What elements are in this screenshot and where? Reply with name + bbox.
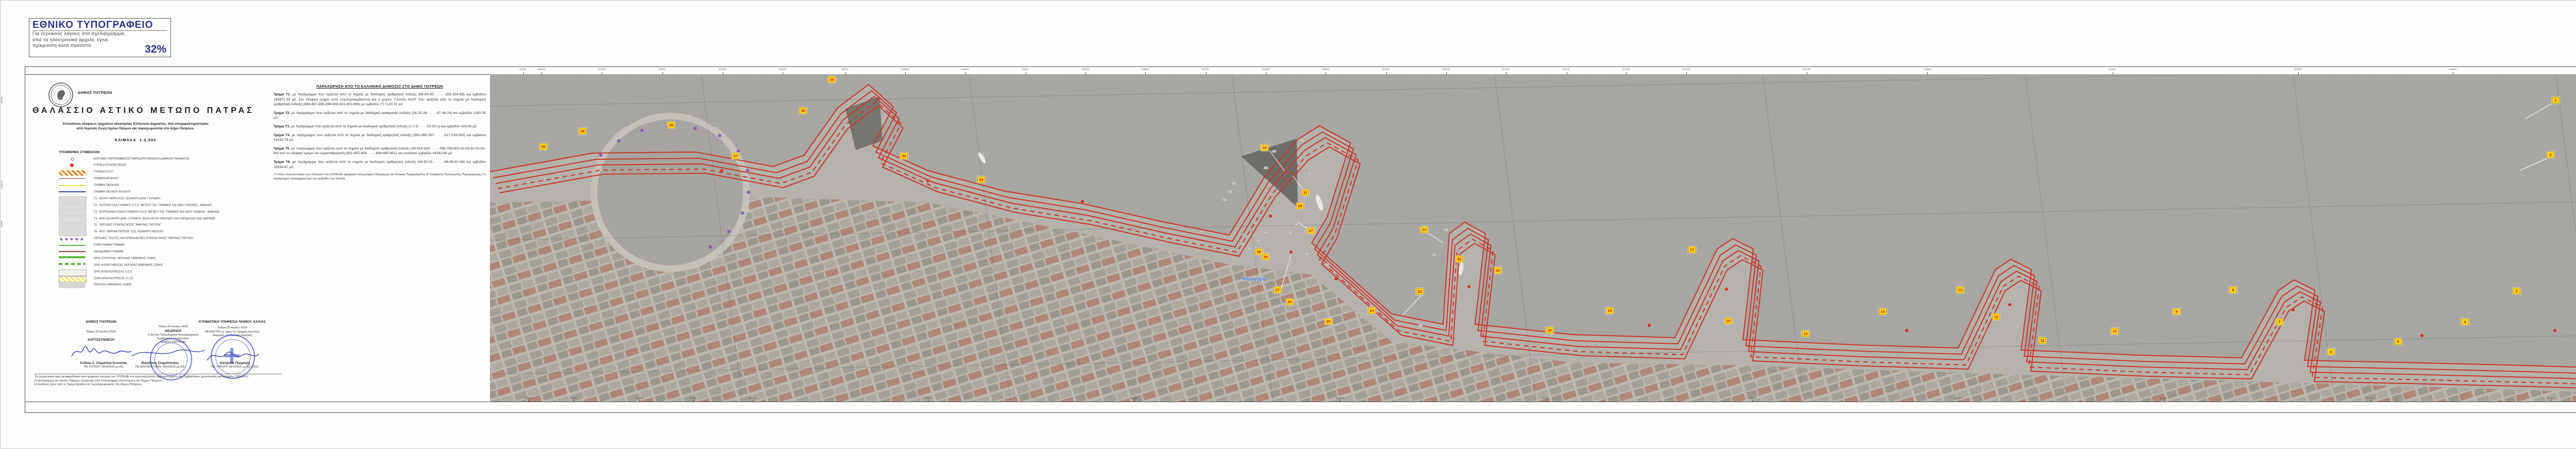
note-line: Η σύνθεση έγινε από το Τμήμα Αρχείου & Γ… (35, 383, 282, 387)
vertex-number-label: 406 (1264, 230, 1268, 233)
legend-item: Τ4 - ΑΠΟ ΛΕΩΦΟΡΟ ΔΗΜ. ΓΟΥΝΑΡΗ, ΜΩΛΟ ΑΓΙΟ… (59, 216, 275, 223)
grayfill-swatch-icon (59, 283, 86, 288)
vertex-number-label: 440 (1444, 228, 1449, 231)
numbered-marker-badge: 35 (828, 76, 836, 83)
grid-label-bottom: 4237000 (2547, 397, 2555, 400)
legend-item-label: Τ3 - ΒΟΡΕΙΟΑΝΑΤΟΛΙΚΑ ΣΤΑΘΜΟΥ Ο.Σ.Ε. ΜΕΤΑ… (94, 210, 310, 213)
graybox-swatch-icon (59, 230, 87, 236)
purpledots-swatch-icon (59, 237, 86, 242)
legend-item-label: ΠΕΡΙΟΧΗ ΛΙΜΕΝΙΚΗΣ ΖΩΝΗΣ (94, 283, 310, 286)
grid-label-top: 4235000 (778, 68, 787, 71)
grid-label-top: 301900 (2109, 68, 2115, 71)
grid-label-top: 4238500 (2449, 68, 2457, 71)
grid-label-top: 300500 (658, 68, 665, 71)
numbered-marker-badge: 5 (2394, 338, 2402, 345)
scale-note: ΚΛΙΜΑΚΑ 1:2,500 (32, 138, 239, 142)
greendash-swatch-icon (59, 263, 86, 265)
numbered-marker-badge: 9 (2173, 308, 2180, 315)
grid-label-bottom: 4236750 (2366, 397, 2375, 400)
numbered-marker-badge: 2 (2547, 152, 2554, 158)
building-dot (1269, 214, 1272, 218)
grid-label-top: 4236750 (1442, 68, 1450, 71)
plan-sheet: ΕΘΝΙΚΟ ΤΥΠΟΓΡΑΦΕΙΟ Για τεχνικούς λόγους … (0, 0, 2576, 449)
grid-label-top: 301500 (1382, 68, 1389, 71)
legend-item: ΓΗΠΕΔΟ Ν.Ο.Π. (59, 170, 275, 176)
graybox-swatch-icon (59, 217, 87, 223)
numbered-marker-badge: 31 (1301, 189, 1309, 196)
blueline-swatch-icon (59, 191, 86, 192)
legend-item-label: ΧΕΡΣΑΙΕΣ, ΠΛΩΤΕΣ ΚΑΙ ΕΠΙΘΑΛΑΣΣΙΕΣ ΕΓΚΑΤΑ… (94, 237, 310, 240)
concession-paragraph: Τμήμα Τ3, με περίγραμμα που ορίζεται από… (274, 124, 486, 129)
grid-label-top: 4237250 (1622, 68, 1631, 71)
legend-item-label: ΖΩΝΗ ΑΠΑΛΛΟΤΡΙΩΣΗΣ Ο.Σ.Ε. (94, 277, 310, 280)
numbered-marker-badge: 36 (799, 107, 807, 114)
orangehatch-swatch-icon (59, 170, 86, 176)
note-line: Τα περιμετρικά όρια μεταφέρθηκαν από ψηφ… (35, 375, 282, 379)
legend-item: Τ5 - ΧΕΡΣΑΙΕΣ ΕΓΚΑΤΑΣΤΑΣΕΙΣ "ΜΑΡΙΝΑΣ ΠΑΤ… (59, 223, 275, 229)
numbered-marker-badge: 16 (1724, 318, 1732, 324)
dashbox-swatch-icon (59, 270, 87, 276)
grid-label-bottom: 301750 (1542, 397, 1549, 400)
numbered-marker-badge: 29 (1296, 203, 1304, 209)
yellowhatch-swatch-icon (59, 276, 87, 282)
building-dot (1467, 285, 1470, 288)
numbered-marker-badge: 32 (1261, 144, 1268, 151)
vertex-number-label: 354 (1300, 139, 1304, 141)
graybox-swatch-icon (59, 196, 87, 203)
numbered-marker-badge: 15 (1802, 330, 1809, 337)
grid-label-top: 4234000 (537, 68, 546, 71)
numbered-marker-badge: 37 (732, 153, 739, 159)
vertex-number-label: 350 (1272, 150, 1277, 153)
numbered-marker-badge: 34 (900, 153, 908, 159)
orthophoto-map: Ψαραγορά 4039383736353433323130292827272… (490, 74, 2576, 402)
legend-list: ΚΟΡΥΦΕΣ ΠΕΡΙΓΡΑΜΜΑΤΟΣ ΠΑΡΑΧΩΡΟΥΜΕΝΩΝ ΕΔΑ… (59, 156, 275, 289)
vertex-number-label: 320 (1223, 198, 1227, 201)
grid-label-bottom: 4235500 (1336, 397, 1344, 400)
vertex-number-label: 405 (1257, 239, 1261, 241)
numbered-marker-badge: 3 (2513, 288, 2520, 294)
legend-item-label: ΓΡΑΜΜΗ ΠΑΛΑΙΟΥ ΑΙΓΙΑΛΟΥ (94, 190, 310, 193)
legend-item: ΟΡΙΟ ΑΠΑΛΛΟΤΡΙΩΣΗΣ Ο.Σ.Ε. (59, 269, 275, 276)
legend-item-label: Τ2 - ΝΟΤΙΟΔΥΤΙΚΑ ΣΤΑΘΜΟΥ Ο.Σ.Ε. ΜΕΤΑΞΥ Σ… (94, 204, 310, 207)
numbered-marker-badge: 6 (2327, 348, 2335, 355)
numbered-marker-badge: 17 (1688, 246, 1696, 253)
building-dot (1648, 324, 1651, 327)
redline-swatch-icon (59, 178, 86, 179)
concession-footnote: (*) Λόγω αναντιστοιχίας των στοιχείων το… (274, 173, 486, 181)
grid-label-bottom: 4236250 (1954, 397, 1962, 400)
reddot-swatch-icon (59, 163, 86, 168)
grid-label-top: 4236000 (1141, 68, 1149, 71)
grid-label-bottom: 301000 (570, 397, 577, 400)
vertex-number-label: 93 (1289, 231, 1292, 234)
numbered-marker-badge: 8 (2229, 287, 2237, 293)
legend-item: ΟΙΚΟΔΟΜΙΚΗ ΓΡΑΜΜΗ (59, 249, 275, 256)
building-dot (2420, 334, 2424, 337)
legend-item-label: ΓΡΑΜΜΗ ΠΑΡΑΛΙΑΣ (94, 184, 310, 187)
concession-heading: ΠΑΡΑΧΩΡΗΣΗ ΑΠΟ ΤΟ ΕΛΛΗΝΙΚΟ ΔΗΜΟΣΙΟ ΣΤΟ Δ… (274, 84, 486, 89)
numbered-marker-badge: 24 (1368, 307, 1376, 314)
building-dot (720, 169, 723, 172)
numbered-marker-badge: 13 (1956, 287, 1964, 293)
concession-paragraph: Τμήμα Τ4, με περίγραμμα που ορίζεται από… (274, 133, 486, 143)
legend-item: ΓΡΑΜΜΗ ΠΑΛΑΙΟΥ ΑΙΓΙΑΛΟΥ (59, 189, 275, 196)
grid-label-bottom: 302000 (2160, 397, 2167, 400)
numbered-marker-badge: 28 (1262, 254, 1269, 260)
numbered-marker-badge: 18 (1606, 307, 1614, 314)
grid-label-top: 300750 (841, 68, 848, 71)
concession-paragraph: Τμήμα Τ2, με περίγραμμα που ορίζεται από… (274, 111, 486, 121)
source-notes: Τα περιμετρικά όρια μεταφέρθηκαν από ψηφ… (35, 374, 282, 387)
concession-text-block: ΠΑΡΑΧΩΡΗΣΗ ΑΠΟ ΤΟ ΕΛΛΗΝΙΚΟ ΔΗΜΟΣΙΟ ΣΤΟ Δ… (274, 84, 486, 181)
building-dot (1284, 171, 1287, 174)
grid-label-top: 4236250 (1262, 68, 1270, 71)
vertex-number-label: 412 (1418, 324, 1423, 327)
grid-label-left: 300500 (1, 221, 3, 227)
vertex-number-label: 404 (1247, 247, 1252, 250)
legend-item-label: ΟΙΚΟΔΟΜΙΚΗ ΓΡΑΜΜΗ (94, 250, 310, 253)
graybox-swatch-icon (59, 210, 87, 216)
numbered-marker-badge: 11 (2039, 337, 2046, 344)
legend-item: ΚΤΙΡΙΑ & ΕΓΚΑΤΑΣΤΑΣΕΙΣ (59, 163, 275, 170)
map-graphics (490, 74, 2576, 402)
psaragora-label: Ψαραγορά (1242, 276, 1265, 281)
legend-item-label: Τ6 - ΑΠΟ "ΜΑΡΙΝΑ ΠΑΤΡΩΝ" ΕΩΣ ΧΕΙΜΑΡΡΟ ΜΕ… (94, 230, 310, 233)
grid-label-left: 300250 (1, 97, 3, 104)
vertex-number-label: 92 (1295, 223, 1298, 226)
building-dot (2553, 329, 2556, 332)
printing-office-title: ΕΘΝΙΚΟ ΤΥΠΟΓΡΑΦΕΙΟ (32, 20, 167, 31)
numbered-marker-badge: 14 (1879, 308, 1887, 315)
grid-label-top: 4236500 (1321, 68, 1330, 71)
numbered-marker-badge: 27 (1307, 227, 1315, 234)
grid-label-top: 301250 (1202, 68, 1209, 71)
graybox-swatch-icon (59, 203, 87, 209)
legend-item: Τ1 - ΝΟΤΙΟ ΠΑΡΚΟ ΕΩΣ ΛΕΩΦΟΡΟ ΔΗΜ. ΓΟΥΝΑΡ… (59, 196, 275, 203)
concession-paragraph: Τμήμα Τ1, με περίγραμμα που ορίζεται από… (274, 92, 486, 107)
marina-basin (594, 116, 747, 269)
grid-label-bottom: 4233750 (524, 397, 533, 400)
concession-paragraphs: Τμήμα Τ1, με περίγραμμα που ορίζεται από… (274, 92, 486, 181)
legend-item-label: ΟΡΙΟ ΑΠΑΛΛΟΤΡΙΩΣΗΣ Ο.Σ.Ε. (94, 270, 310, 273)
vertex-number-label: 340 (1232, 182, 1236, 185)
grid-label-left: 4233750 (1, 180, 3, 189)
grid-label-bottom: 4235000 (924, 397, 932, 400)
numbered-marker-badge: 10 (2111, 328, 2119, 335)
grid-label-top: 301000 (1022, 68, 1028, 71)
grid-label-bottom: 301500 (1130, 397, 1137, 400)
grid-label-bottom: 4236000 (1748, 397, 1756, 400)
municipality-seal-icon (48, 82, 74, 108)
grid-label-top: 4238000 (1923, 68, 1931, 71)
building-dot (1290, 251, 1293, 254)
legend-item: ΧΕΡΣΑΙΕΣ, ΠΛΩΤΕΣ ΚΑΙ ΕΠΙΘΑΛΑΣΣΙΕΣ ΕΓΚΑΤΑ… (59, 236, 275, 243)
darkredline-swatch-icon (59, 251, 86, 252)
vertex-number-label: 430 (1432, 253, 1436, 256)
building-dot (926, 179, 929, 182)
legend-item: ΡΥΜΟΤΟΜΙΚΗ ΓΡΑΜΜΗ (59, 243, 275, 250)
numbered-marker-badge: 4 (2461, 319, 2469, 325)
numbered-marker-badge: 27 (1274, 287, 1281, 293)
numbered-marker-badge: 23 (1416, 288, 1423, 295)
plan-title: ΘΑΛΑΣΣΙΟ ΑΣΤΙΚΟ ΜΕΤΩΠΟ ΠΑΤΡΑΣ (32, 106, 239, 115)
vertex-number-label: 95 (1241, 243, 1244, 245)
numbered-marker-badge: 20 (1494, 267, 1502, 274)
stamp-line-2: από το ηλεκτρονικό αρχείο, έγινε (32, 37, 167, 43)
legend-item-label: Τ1 - ΝΟΤΙΟ ΠΑΡΚΟ ΕΩΣ ΛΕΩΦΟΡΟ ΔΗΜ. ΓΟΥΝΑΡ… (94, 197, 310, 200)
signature-ink-left (67, 341, 134, 361)
legend-item: ΖΩΝΗ ΑΠΑΛΛΟΤΡΙΩΣΗΣ Ο.Σ.Ε. (59, 276, 275, 282)
vertex-number-label: 410 (1325, 263, 1329, 266)
numbered-marker-badge: 12 (1992, 313, 2000, 320)
grid-label-top: 4237000 (1502, 68, 1510, 71)
legend-item-label: ΡΥΜΟΤΟΜΙΚΗ ΓΡΑΜΜΗ (94, 243, 310, 246)
vertex-number-label: 94 (1242, 234, 1245, 236)
vertex-swatch-icon (59, 157, 86, 161)
legend-item: Τ3 - ΒΟΡΕΙΟΑΝΑΤΟΛΙΚΑ ΣΤΑΘΜΟΥ Ο.Σ.Ε. ΜΕΤΑ… (59, 209, 275, 216)
numbered-marker-badge: 33 (977, 176, 985, 183)
grid-label-bottom: 301250 (689, 397, 696, 400)
grid-label-top: 4235750 (1081, 68, 1090, 71)
numbered-marker-badge: 26 (1286, 298, 1294, 305)
numbered-marker-badge: 1 (2552, 97, 2560, 104)
numbered-marker-badge: 21 (1420, 226, 1428, 233)
legend-item: Τ2 - ΝΟΤΙΟΔΥΤΙΚΑ ΣΤΑΘΜΟΥ Ο.Σ.Ε. ΜΕΤΑΞΥ Σ… (59, 203, 275, 209)
legend-item: ΠΕΡΙΟΧΗ ΛΙΜΕΝΙΚΗΣ ΖΩΝΗΣ (59, 282, 275, 289)
grid-label-bottom: 4234750 (749, 397, 757, 400)
signature-ink-middle (129, 345, 207, 360)
grid-label-top: 4235250 (901, 68, 909, 71)
numbered-marker-badge: 40 (539, 143, 547, 150)
inner-bottom-line (25, 402, 2576, 402)
vertex-number-label: 360 (1264, 167, 1268, 169)
building-dot (1905, 329, 1908, 332)
building-dot (1081, 200, 1084, 203)
concession-paragraph: Τμήμα Τ6, με περίγραμμα που ορίζεται από… (274, 160, 486, 170)
building-dot (1725, 288, 1728, 291)
vertex-number-label: 409 (1305, 252, 1310, 255)
legend-item-label: Τ4 - ΑΠΟ ΛΕΩΦΟΡΟ ΔΗΜ. ΓΟΥΝΑΡΗ, ΜΩΛΟ ΑΓΙΟ… (94, 217, 310, 220)
numbered-marker-badge: 19 (1546, 327, 1553, 334)
concession-paragraph: Τμήμα Τ5, με περίγραμμα που ορίζεται από… (274, 146, 486, 156)
building-dot (1334, 277, 1337, 280)
numbered-marker-badge: 39 (579, 128, 586, 135)
legend-item-label: ΟΡΙΟ ΚΑΤΑΡΓΗΘΕΙΣΑΣ ΧΕΡΣΑΙΑΣ ΛΙΜΕΝΙΚΗΣ ΖΩ… (94, 263, 310, 267)
numbered-marker-badge: 25 (1325, 318, 1332, 325)
vertex-number-label: 90 (1308, 172, 1311, 174)
printing-office-stamp: ΕΘΝΙΚΟ ΤΥΠΟΓΡΑΦΕΙΟ Για τεχνικούς λόγους … (29, 18, 171, 57)
legend-item-label: ΟΡΙΟ ΙΣΧΥΟΥΣΑΣ ΧΕΡΣΑΙΑΣ ΛΙΜΕΝΙΚΗΣ ΖΩΝΗΣ (94, 257, 310, 260)
grid-label-top: 4237500 (1682, 68, 1690, 71)
legend-item-label: Τ5 - ΧΕΡΣΑΙΕΣ ΕΓΚΑΤΑΣΤΑΣΕΙΣ "ΜΑΡΙΝΑΣ ΠΑΤ… (94, 223, 310, 226)
graybox-swatch-icon (59, 223, 87, 229)
numbered-marker-badge: 38 (667, 122, 675, 128)
greenline-swatch-icon (59, 245, 86, 246)
legend-item: ΓΡΑΜΜΗ ΠΑΡΑΛΙΑΣ (59, 183, 275, 190)
municipality-name: ΔΗΜΟΣ ΠΑΤΡΕΩΝ (78, 91, 112, 95)
yellowline-swatch-icon (59, 185, 86, 187)
vertex-number-label: 400 (1289, 261, 1293, 263)
reduction-percentage: 32% (145, 43, 166, 56)
building-dot (2008, 303, 2011, 306)
numbered-marker-badge: 7 (2276, 319, 2283, 325)
legend-item: ΚΟΡΥΦΕΣ ΠΕΡΙΓΡΑΜΜΑΤΟΣ ΠΑΡΑΧΩΡΟΥΜΕΝΩΝ ΕΔΑ… (59, 156, 275, 163)
grid-label-top: 4234250 (598, 68, 606, 71)
grid-label-top: 300250 (519, 68, 526, 71)
legend-item: ΟΡΙΟ ΙΣΧΥΟΥΣΑΣ ΧΕΡΣΑΙΑΣ ΛΙΜΕΝΙΚΗΣ ΖΩΝΗΣ (59, 256, 275, 262)
building-dot (2292, 308, 2295, 311)
numbered-marker-badge: 22 (1455, 256, 1463, 262)
grid-label-top: 4234750 (719, 68, 727, 71)
legend-title: ΥΠΟΜΝΗΜΑ ΣΥΜΒΟΛΩΝ (59, 151, 99, 154)
grid-label-top: 4237750 (1803, 68, 1811, 71)
legend-item: ΟΡΙΟ ΚΑΤΑΡΓΗΘΕΙΣΑΣ ΧΕΡΣΑΙΑΣ ΛΙΜΕΝΙΚΗΣ ΖΩ… (59, 262, 275, 269)
grid-label-bottom: 4234250 (635, 397, 643, 400)
grid-label-top: 301750 (1563, 68, 1569, 71)
scale-value: 1:2,500 (140, 138, 156, 142)
stamp-line-1: Για τεχνικούς λόγους στο σχεδιάγραμμα, (32, 31, 167, 37)
plan-subtitle: Απεικόνιση εδαφικών τμημάτων ιδιοκτησίας… (32, 122, 239, 131)
grid-label-top: 4238250 (2294, 68, 2302, 71)
grid-label-top: 4235500 (961, 68, 969, 71)
legend-item: Τ6 - ΑΠΟ "ΜΑΡΙΝΑ ΠΑΤΡΩΝ" ΕΩΣ ΧΕΙΜΑΡΡΟ ΜΕ… (59, 229, 275, 236)
greenthick-swatch-icon (59, 256, 86, 258)
legend-item: ΓΡΑΜΜΗ ΑΙΓΙΑΛΟΥ (59, 176, 275, 183)
vertex-number-label: 330 (1228, 190, 1232, 193)
